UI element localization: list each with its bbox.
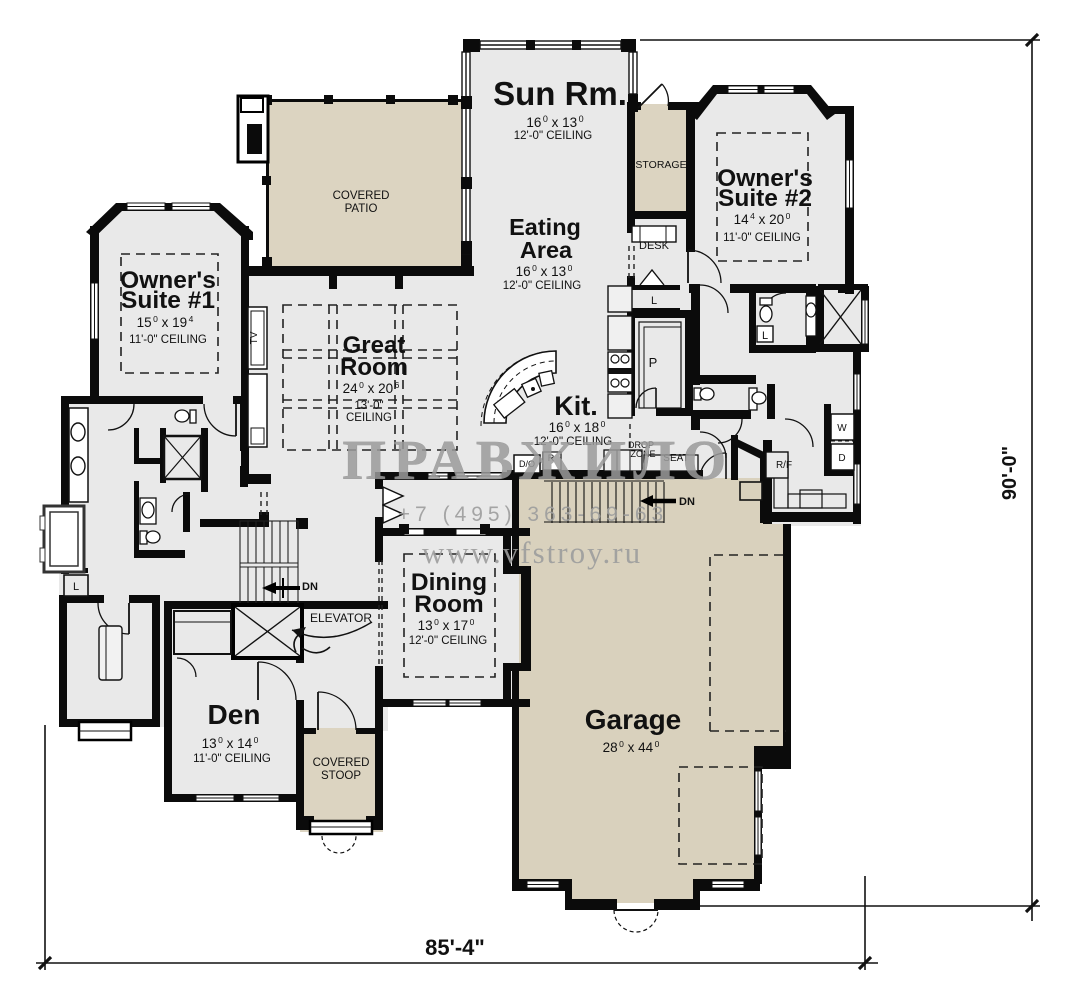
svg-text:Area: Area [520, 237, 573, 263]
svg-text:D: D [838, 453, 845, 464]
svg-text:Suite #2: Suite #2 [718, 185, 812, 212]
svg-text:STOOP: STOOP [321, 770, 361, 782]
svg-text:P: P [649, 355, 658, 370]
svg-text:130 x 170: 130 x 170 [418, 617, 475, 633]
svg-text:160 x 130: 160 x 130 [526, 114, 583, 130]
svg-text:DN: DN [679, 496, 695, 508]
svg-text:COVERED: COVERED [313, 757, 370, 769]
svg-text:12'-0" CEILING: 12'-0" CEILING [514, 130, 593, 142]
svg-text:280 x 440: 280 x 440 [603, 739, 660, 755]
svg-text:ПРАВЖИЛО: ПРАВЖИЛО [342, 430, 733, 492]
svg-text:Garage: Garage [585, 704, 682, 735]
svg-text:+7 (495) 363-69-63: +7 (495) 363-69-63 [398, 503, 668, 526]
svg-text:L: L [651, 295, 657, 307]
svg-text:160 x 130: 160 x 130 [516, 263, 573, 279]
svg-text:Room: Room [340, 354, 408, 381]
svg-text:PATIO: PATIO [345, 203, 378, 215]
svg-text:130 x 140: 130 x 140 [202, 735, 259, 751]
svg-text:L: L [762, 330, 768, 342]
svg-text:12'-0" CEILING: 12'-0" CEILING [503, 280, 582, 292]
svg-text:11'-0" CEILING: 11'-0" CEILING [129, 334, 207, 346]
svg-text:ELEVATOR: ELEVATOR [310, 611, 372, 625]
svg-text:11'-0" CEILING: 11'-0" CEILING [193, 753, 271, 765]
svg-text:www.vfstroy.ru: www.vfstroy.ru [422, 535, 642, 570]
svg-text:STORAGE: STORAGE [635, 159, 686, 171]
svg-text:150 x 194: 150 x 194 [137, 314, 194, 330]
svg-text:Kit.: Kit. [554, 391, 598, 421]
svg-text:144 x 200: 144 x 200 [734, 211, 791, 227]
svg-text:Sun Rm.: Sun Rm. [493, 75, 627, 112]
svg-text:13'-0": 13'-0" [354, 400, 383, 412]
svg-text:240 x 206: 240 x 206 [343, 380, 400, 396]
svg-text:Room: Room [414, 591, 483, 618]
svg-text:90'-0": 90'-0" [999, 446, 1021, 500]
svg-text:Den: Den [208, 699, 261, 730]
svg-text:DESK: DESK [639, 240, 670, 252]
svg-text:COVERED: COVERED [333, 190, 390, 202]
svg-text:L: L [73, 581, 79, 593]
svg-text:DN: DN [302, 581, 318, 593]
svg-text:CEILING: CEILING [346, 412, 392, 424]
svg-text:Suite #1: Suite #1 [121, 287, 215, 314]
svg-text:TV: TV [249, 331, 260, 344]
svg-text:85'-4": 85'-4" [425, 935, 485, 960]
svg-text:12'-0" CEILING: 12'-0" CEILING [409, 635, 488, 647]
svg-text:W: W [837, 423, 847, 434]
svg-text:11'-0" CEILING: 11'-0" CEILING [723, 232, 801, 244]
svg-text:R/F: R/F [776, 460, 792, 471]
